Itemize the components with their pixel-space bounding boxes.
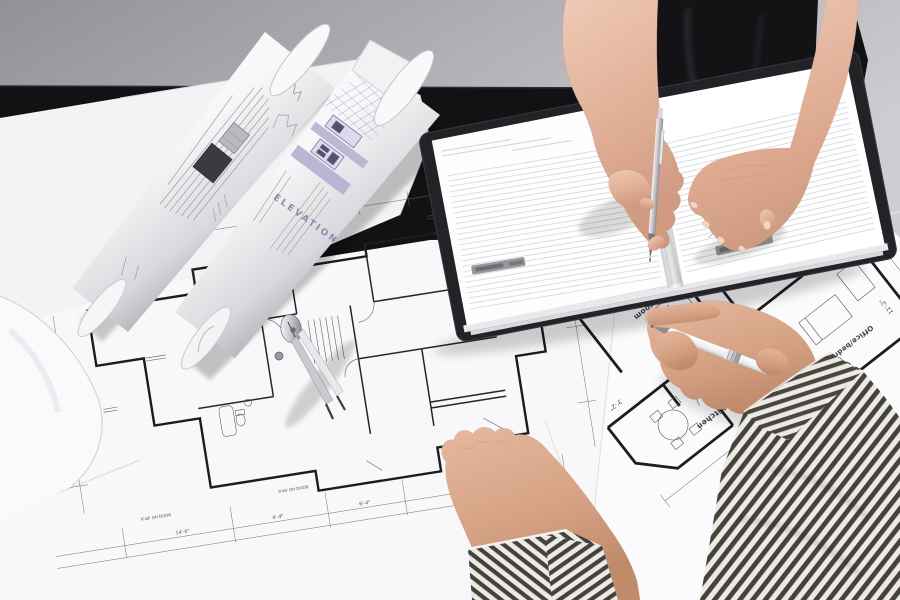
compass-hinge-screw bbox=[290, 327, 296, 333]
photo-architects-reviewing-blueprints: 14'-0" 4'-4" 6'-4" 8'-4" 9'x8' OH DOOR 9… bbox=[0, 0, 900, 600]
compass-knob bbox=[275, 352, 283, 360]
pen-clicker bbox=[658, 108, 663, 118]
scene: 14'-0" 4'-4" 6'-4" 8'-4" 9'x8' OH DOOR 9… bbox=[0, 0, 900, 600]
